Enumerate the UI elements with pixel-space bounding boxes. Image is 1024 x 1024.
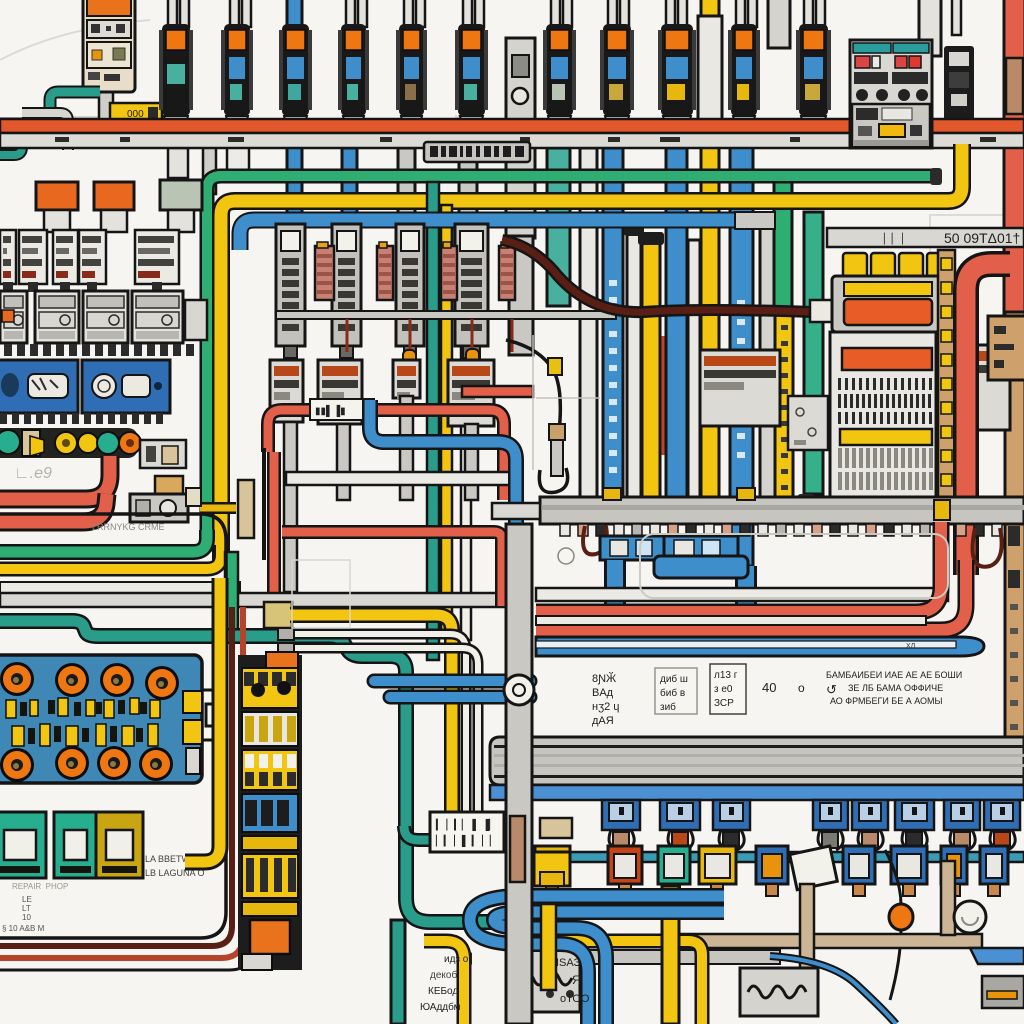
svg-text:БAМБAИБЕИ ИАЕ AЕ AЕ БОШИ: БAМБAИБЕИ ИАЕ AЕ AЕ БОШИ [826,670,962,680]
svg-text:оТОО: оТОО [560,993,590,1005]
svg-text:ЗСР: ЗСР [714,698,734,709]
svg-text:ЗЕ ЛБ БАМА ОФФИЧЕ: ЗЕ ЛБ БАМА ОФФИЧЕ [848,683,943,693]
svg-text:40: 40 [762,680,776,695]
svg-text:50 09TΔ01†: 50 09TΔ01† [944,230,1020,246]
svg-text:Я: Я [572,973,581,987]
svg-text:о: о [798,681,805,695]
svg-text:∟.е9: ∟.е9 [14,465,52,482]
svg-text:ΒAд: ΒAд [592,687,614,699]
svg-text:REPAIR PHOP: REPAIR PHOP [12,882,68,891]
svg-text:LA BBETW: LA BBETW [145,854,191,864]
svg-text:LE: LE [22,895,32,904]
svg-text:зиб: зиб [660,701,676,713]
svg-text:декоб: декоб [430,969,457,981]
svg-text:ХЛ: ХЛ [906,643,916,650]
svg-text:з е0: з е0 [714,684,733,695]
svg-text:LT: LT [22,904,31,913]
svg-text:идз о ▏: идз о ▏ [444,952,479,965]
svg-text:КЕБод: КЕБод [428,986,458,997]
svg-text:LRRNYKG CRME: LRRNYKG CRME [92,522,165,532]
svg-text:л13 г: л13 г [714,670,738,681]
svg-text:АО ФРМБЕГИ БЕ А АОМЫ: АО ФРМБЕГИ БЕ А АОМЫ [830,696,943,706]
svg-text:биб в: биб в [660,687,685,699]
svg-text:ΙЅАЗ: ΙЅАЗ [556,957,581,969]
svg-text:▏▎ ▏▌ ▎ ▏▏: ▏▎ ▏▌ ▎ ▏▏ [435,834,498,848]
svg-text:8ƝӁ: 8ƝӁ [592,672,616,685]
svg-text:▮▮▌▐▮: ▮▮▌▐▮ [315,404,346,418]
svg-text:§ 10 A&B M: § 10 A&B M [2,924,45,933]
svg-text:10: 10 [22,913,31,922]
svg-text:ЮАддбм: ЮАддбм [420,1001,461,1013]
svg-text:▏▏ ▏: ▏▏ ▏ [883,232,910,245]
svg-text:дAЯ: дAЯ [592,715,614,727]
svg-text:↺: ↺ [826,682,837,697]
svg-text:нʒ2 ɥ: нʒ2 ɥ [592,701,619,713]
svg-text:▎ ▏▎▏ ▌ ▐▏: ▎ ▏▎▏ ▌ ▐▏ [435,818,497,832]
svg-text:диб ш: диб ш [660,673,688,685]
